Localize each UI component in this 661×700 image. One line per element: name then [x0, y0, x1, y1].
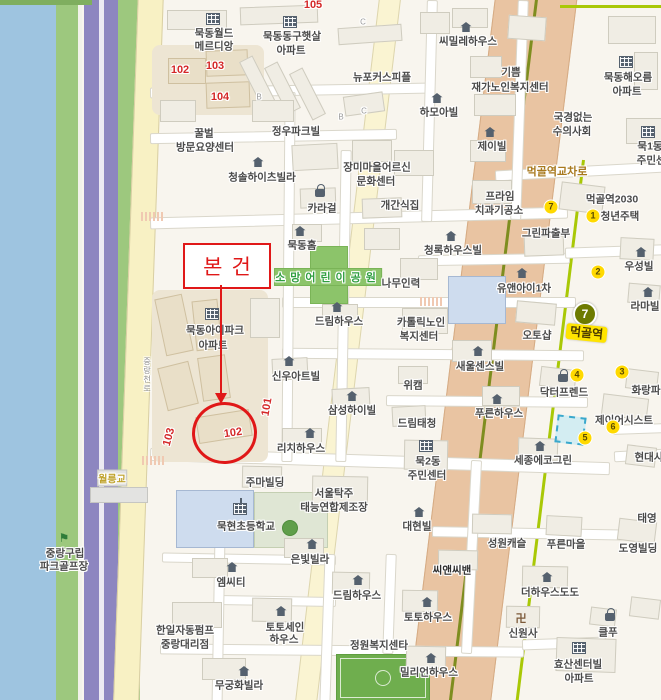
map-label: 청년주택: [601, 209, 640, 224]
bldg-icon: [572, 642, 586, 654]
map-label: 뉴포커스피플: [353, 70, 411, 85]
subway-exit-badge: 1: [586, 209, 601, 224]
map-canvas[interactable]: 7 먹골역 본건 卍⚑묵동월드메르디앙102103104105103101102…: [0, 0, 661, 700]
map-label: 102: [171, 64, 189, 76]
map-label: 밀리언하우스: [400, 665, 458, 680]
map-label: 꿀벌: [194, 126, 213, 141]
map-label: 무궁화빌라: [215, 678, 263, 693]
map-label: C: [360, 18, 366, 27]
subway-exit-badge: 4: [570, 368, 585, 383]
map-label: 청솔하이츠빌라: [228, 170, 296, 185]
bag-icon: [315, 189, 325, 197]
bldg-icon: [205, 308, 219, 320]
bldg-icon: [206, 13, 220, 25]
map-label: 푸른하우스: [475, 406, 523, 421]
building: [546, 515, 583, 537]
map-label: 우성빌: [625, 259, 654, 274]
map-label: 태능연합제조장: [300, 500, 368, 515]
map-label: 중랑대리점: [161, 637, 209, 652]
map-label: 제이빌: [478, 139, 507, 154]
map-label: 묵동동구햇살: [263, 29, 321, 44]
map-label: 소망어린이공원: [274, 268, 382, 286]
map-label: 묵1동: [637, 139, 661, 154]
map-label: 푸른마을: [547, 537, 586, 552]
map-label: 도영빌딩: [619, 541, 658, 556]
map-label: 라마빌: [631, 299, 660, 314]
crosswalk: [141, 212, 163, 221]
map-label: B: [256, 93, 261, 102]
home-icon: [414, 507, 425, 517]
map-label: 개간식집: [381, 198, 420, 213]
map-label: 정우파크빌: [272, 124, 320, 139]
map-label: 먹골역2030: [586, 192, 638, 207]
map-label: 아파트: [277, 43, 306, 58]
map-label: 현대사: [635, 450, 661, 465]
map-label: 먹골역교차로: [527, 163, 588, 179]
map-label: 메르디앙: [195, 39, 234, 54]
subject-annotation-box: 본건: [183, 243, 271, 289]
map-label: 주민센터: [408, 468, 447, 483]
map-label: 기쁨: [501, 65, 520, 80]
map-label: 재가노인복지센터: [471, 80, 548, 95]
map-label: 파크골프장: [40, 559, 88, 574]
map-label: 닥터프렌드: [540, 385, 588, 400]
building: [515, 300, 557, 325]
map-label: 토토하우스: [404, 610, 452, 625]
map-label: 105: [304, 0, 322, 11]
map-label: 정원복지센타: [350, 638, 408, 653]
map-label: 국경없는: [554, 110, 593, 125]
map-label: 카톨릭노인: [397, 315, 445, 330]
building: [470, 56, 502, 78]
map-label: 새울센스빌: [456, 359, 504, 374]
map-label: 아파트: [613, 84, 642, 99]
building: [452, 8, 488, 28]
map-label: 하모아빌: [420, 105, 459, 120]
golf-icon: ⚑: [59, 531, 70, 545]
subway-exit-badge: 3: [615, 365, 630, 380]
map-label: 장미마을어르신: [343, 160, 411, 175]
school-icon: [233, 503, 247, 515]
map-label: 유앤아이1차: [497, 281, 551, 296]
building: [482, 386, 520, 406]
map-label: 프라임: [486, 189, 515, 204]
subject-annotation-label: 본건: [194, 251, 260, 281]
map-label: 신원사: [509, 626, 538, 641]
map-label: 카라걸: [308, 201, 337, 216]
map-label: 서울탁주: [315, 486, 354, 501]
map-label: 클푸: [598, 625, 617, 640]
map-label: 아파트: [199, 338, 228, 353]
home-icon: [253, 157, 264, 167]
map-label: 청록하우스빌: [424, 243, 482, 258]
map-label: 수의사회: [553, 124, 592, 139]
map-label: 더하우스도도: [521, 585, 579, 600]
map-label: 한일자동펌프: [156, 623, 214, 638]
home-icon: [446, 231, 457, 241]
map-label: 103: [206, 60, 224, 72]
map-label: 씨앤씨밴: [433, 563, 472, 578]
map-label: 성원캐슬: [488, 536, 527, 551]
street-segment: [282, 348, 584, 362]
annotation-arrow-line: [220, 285, 222, 395]
map-label: 묵동해오름: [604, 70, 652, 85]
map-label: 주민센터: [637, 153, 661, 168]
crosswalk: [420, 297, 442, 306]
map-label: 묵현초등학교: [217, 519, 275, 534]
map-label: 복지센터: [400, 329, 439, 344]
bldg-icon: [641, 126, 655, 138]
map-label: 중랑천로: [142, 357, 153, 393]
building: [474, 94, 516, 116]
map-label: 태영: [637, 511, 656, 526]
map-label: B: [338, 113, 343, 122]
expressway-lane-north: [84, 0, 99, 700]
bldg-icon: [419, 440, 433, 452]
map-label: 묵동아이파크: [186, 323, 244, 338]
map-label: 묵2동: [415, 454, 440, 469]
building: [420, 12, 450, 34]
map-label: 묵동홈: [288, 238, 317, 253]
map-label: 엠씨티: [217, 575, 246, 590]
top-green-route-line: [560, 5, 661, 8]
map-label: 101: [259, 397, 274, 417]
map-label: 은빛빌라: [291, 552, 330, 567]
crosswalk: [142, 456, 164, 465]
map-label: 월릉교: [97, 470, 127, 487]
map-label: 나무인력: [382, 276, 421, 291]
map-label: 드림하우스: [333, 588, 381, 603]
map-top-green-edge: [0, 0, 92, 5]
water-area: [0, 0, 56, 700]
map-label: 드림하우스: [315, 314, 363, 329]
bag-icon: [558, 374, 568, 382]
map-label: 그린파출부: [522, 226, 570, 241]
subway-exit-badge: 5: [578, 431, 593, 446]
map-label: 씨밀레하우스: [439, 34, 497, 49]
building: [619, 237, 654, 261]
map-label: 아파트: [565, 671, 594, 686]
bag-icon: [605, 613, 615, 621]
bike-path: [78, 0, 82, 700]
building: [629, 596, 661, 620]
map-label: C: [361, 107, 367, 116]
map-label: 위캠: [403, 378, 422, 393]
building: [472, 514, 512, 535]
map-label: 신우아트빌: [272, 369, 320, 384]
tree-icon: [282, 520, 298, 536]
building: [250, 298, 280, 338]
map-label: 효산센터빌: [554, 657, 602, 672]
map-label: 대현빌: [403, 519, 432, 534]
building: [364, 228, 400, 250]
station-name-label: 먹골역: [565, 323, 608, 343]
building: [608, 16, 656, 44]
map-label: 리치하우스: [277, 441, 325, 456]
map-label: 방문요양센터: [176, 140, 234, 155]
map-label: 삼성하이빌: [328, 403, 376, 418]
subway-exit-badge: 6: [606, 420, 621, 435]
building: [252, 100, 294, 122]
building: [160, 100, 196, 122]
subway-exit-badge: 7: [544, 200, 559, 215]
subway-line7-badge: 7: [573, 302, 597, 326]
map-label: 화랑파: [632, 383, 661, 398]
map-label: 치과기공소: [475, 203, 523, 218]
map-label: 제이어시스트: [595, 413, 653, 428]
building: [291, 143, 338, 171]
map-label: 드림태청: [398, 416, 437, 431]
map-label: 오토샵: [523, 328, 552, 343]
wolleung-bridge: [90, 487, 148, 503]
temple-icon: 卍: [516, 610, 527, 626]
map-label: 주마빌딩: [246, 475, 285, 490]
subway-exit-badge: 2: [591, 265, 606, 280]
map-label: 문화센터: [357, 174, 396, 189]
bldg-icon: [283, 16, 297, 28]
map-label: 104: [211, 91, 229, 103]
map-label: 하우스: [270, 632, 299, 647]
bldg-icon: [619, 56, 633, 68]
map-label: 세종에코그린: [514, 453, 572, 468]
building: [507, 15, 547, 42]
